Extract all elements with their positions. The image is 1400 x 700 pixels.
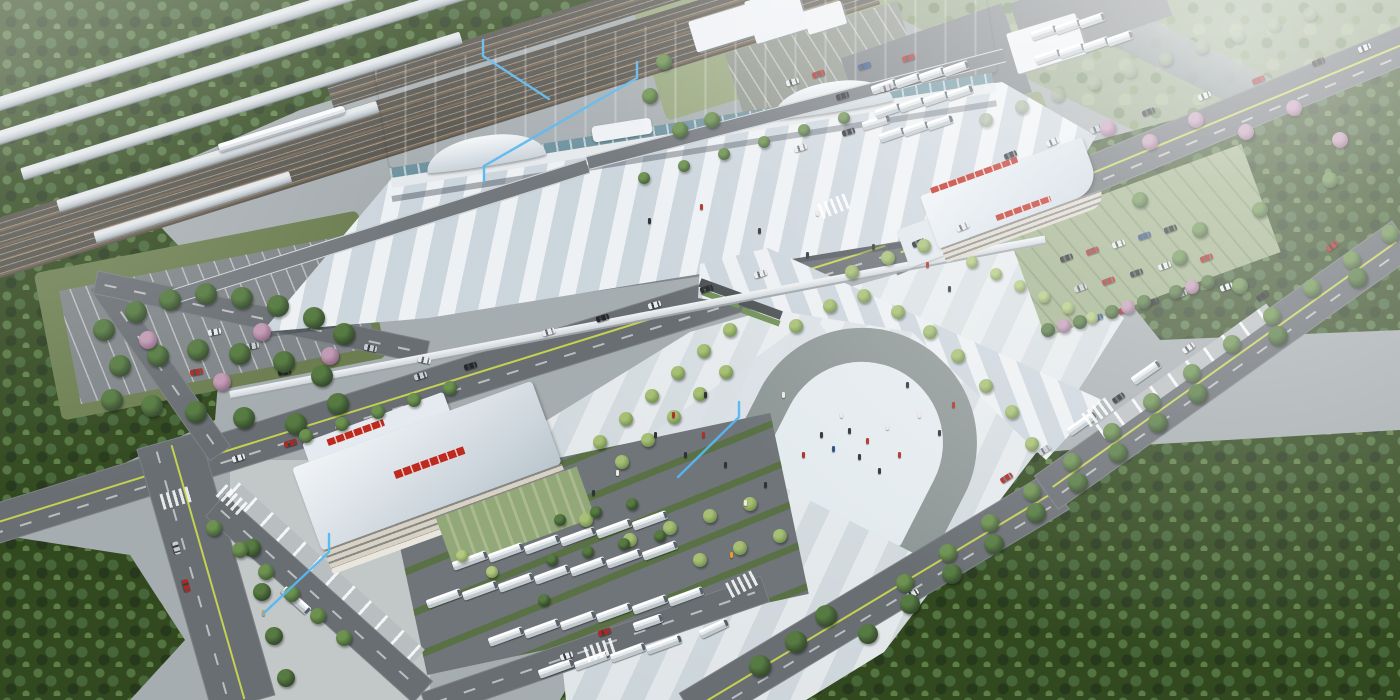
crosswalk xyxy=(159,486,192,510)
crosswalk xyxy=(817,193,851,219)
crosswalk xyxy=(725,570,759,598)
crosswalk xyxy=(215,484,248,516)
crosswalks-layer xyxy=(0,0,1400,700)
aerial-rendering-scene xyxy=(0,0,1400,700)
crosswalk xyxy=(1081,397,1115,428)
crosswalk xyxy=(583,638,617,663)
